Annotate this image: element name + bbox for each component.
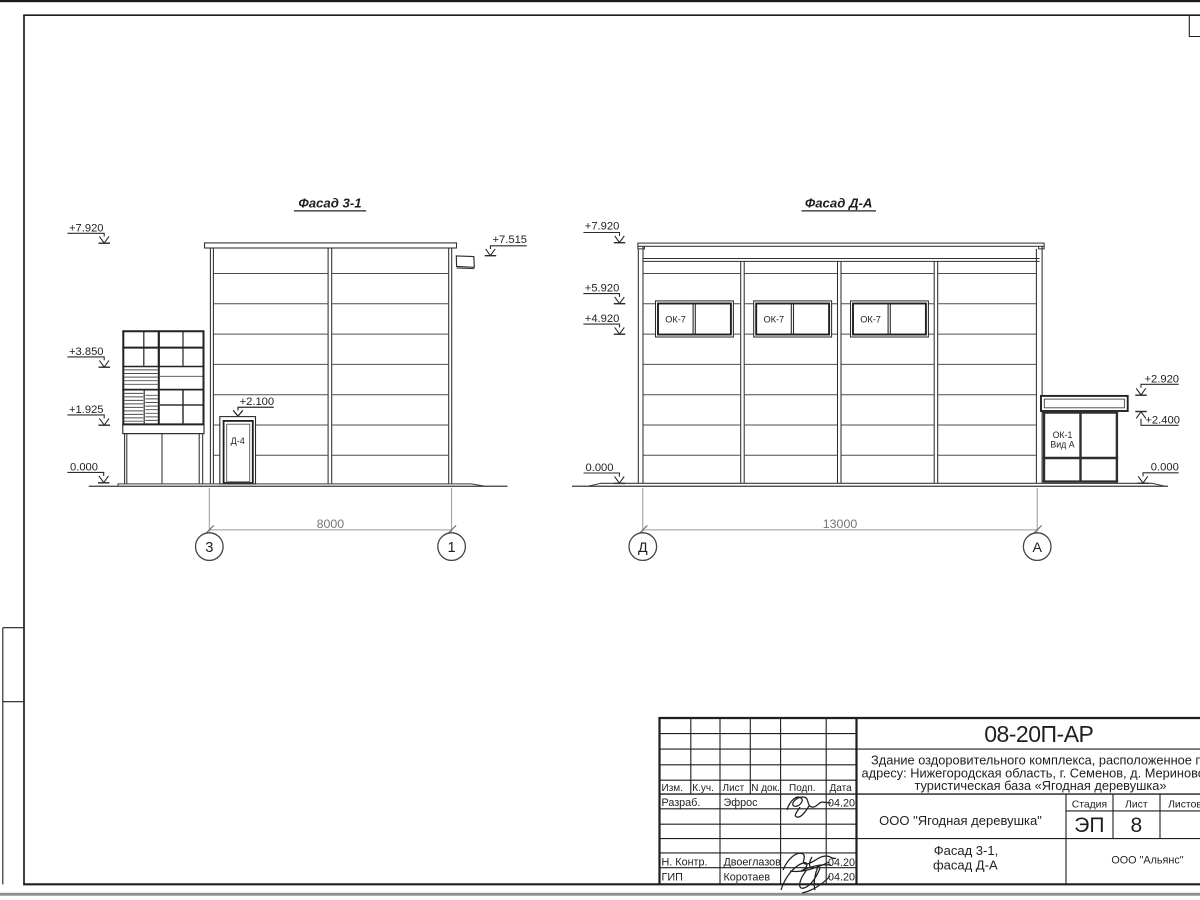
svg-text:Изм.: Изм.: [662, 783, 683, 794]
svg-text:Коротаев: Коротаев: [724, 871, 771, 883]
svg-text:А: А: [1032, 540, 1042, 556]
svg-text:0.000: 0.000: [1151, 461, 1179, 473]
svg-text:08-20П-АР: 08-20П-АР: [984, 721, 1093, 747]
svg-text:ОК-7: ОК-7: [763, 314, 784, 324]
svg-text:04.20: 04.20: [828, 857, 855, 869]
svg-text:13000: 13000: [823, 517, 858, 531]
svg-text:Фасад 3-1: Фасад 3-1: [298, 195, 361, 210]
svg-text:туристическая база «Ягодная де: туристическая база «Ягодная деревушка»: [915, 778, 1167, 793]
svg-text:Двоеглазов: Двоеглазов: [724, 857, 782, 869]
svg-text:Стадия: Стадия: [1072, 799, 1107, 810]
svg-text:0.000: 0.000: [586, 462, 614, 474]
svg-text:Лист: Лист: [1125, 799, 1148, 810]
svg-text:+2.920: +2.920: [1145, 373, 1180, 385]
svg-text:Листов: Листов: [1168, 799, 1200, 810]
svg-text:ОК-7: ОК-7: [665, 314, 686, 324]
svg-text:Фасад Д-А: Фасад Д-А: [805, 195, 873, 210]
svg-text:0.000: 0.000: [70, 462, 98, 474]
svg-text:ГИП: ГИП: [662, 871, 683, 883]
svg-text:N док.: N док.: [751, 783, 780, 794]
svg-text:Д-4: Д-4: [231, 436, 245, 446]
svg-text:+1.925: +1.925: [69, 404, 104, 416]
svg-text:К.уч.: К.уч.: [692, 783, 714, 794]
svg-text:Эфрос: Эфрос: [724, 797, 759, 809]
svg-text:Разраб.: Разраб.: [662, 797, 701, 809]
svg-text:1: 1: [448, 540, 456, 556]
svg-text:Д: Д: [638, 540, 648, 556]
svg-text:фасад Д-А: фасад Д-А: [933, 857, 998, 872]
svg-text:+7.920: +7.920: [69, 222, 104, 234]
svg-text:+7.920: +7.920: [585, 221, 620, 233]
svg-text:ООО "Ягодная деревушка": ООО "Ягодная деревушка": [879, 813, 1042, 828]
svg-text:+5.920: +5.920: [585, 283, 620, 295]
svg-text:3: 3: [205, 540, 213, 556]
svg-text:Фасад 3-1,: Фасад 3-1,: [934, 843, 998, 858]
svg-text:8000: 8000: [317, 517, 345, 531]
svg-text:+2.400: +2.400: [1145, 414, 1180, 426]
svg-text:+3.850: +3.850: [69, 346, 104, 358]
svg-text:8: 8: [1130, 814, 1142, 837]
svg-text:+2.100: +2.100: [240, 396, 275, 408]
svg-text:Подп.: Подп.: [789, 783, 816, 794]
svg-text:ОК-7: ОК-7: [860, 314, 881, 324]
svg-text:Лист: Лист: [723, 783, 745, 794]
svg-text:Вид А: Вид А: [1050, 439, 1074, 449]
svg-text:Н. Контр.: Н. Контр.: [662, 857, 708, 869]
svg-text:+4.920: +4.920: [585, 313, 620, 325]
svg-text:Дата: Дата: [830, 783, 853, 794]
svg-text:ЭП: ЭП: [1074, 814, 1104, 837]
svg-text:04.20: 04.20: [828, 798, 855, 810]
svg-text:04.20: 04.20: [828, 872, 855, 884]
svg-text:+7.515: +7.515: [493, 234, 528, 246]
svg-text:ООО "Альянс": ООО "Альянс": [1111, 855, 1183, 867]
